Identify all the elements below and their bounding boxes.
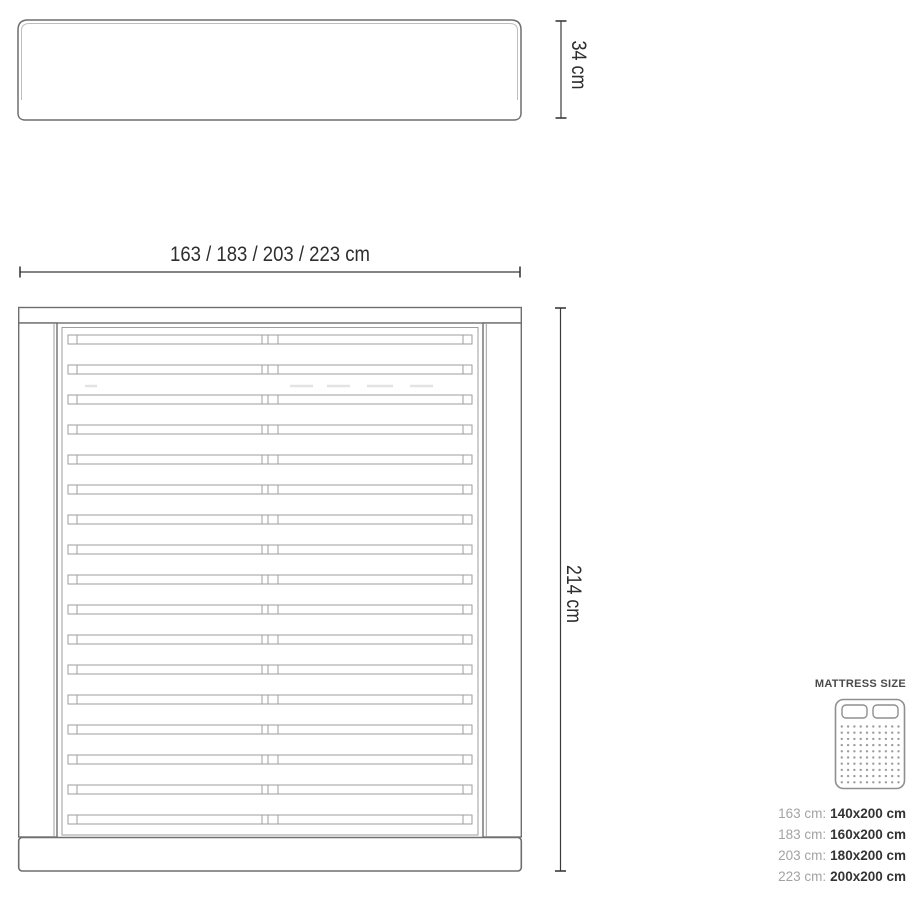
slat-row bbox=[68, 485, 472, 494]
frame-length-dimension: 214 cm bbox=[555, 308, 585, 871]
frame-length-label: 214 cm bbox=[562, 565, 585, 623]
frame-head-rail bbox=[19, 308, 522, 324]
slat-row bbox=[68, 755, 472, 764]
slat-row bbox=[68, 725, 472, 734]
mattress-size-row: 183 cm:160x200 cm bbox=[778, 824, 906, 845]
mattress-dimensions: 200x200 cm bbox=[830, 869, 906, 884]
frame-width-option: 203 cm: bbox=[778, 848, 826, 863]
frame-width-option: 183 cm: bbox=[778, 827, 826, 842]
pillow-left bbox=[842, 705, 867, 718]
frame-width-option: 163 cm: bbox=[778, 806, 826, 821]
headboard-height-label: 34 cm bbox=[567, 41, 590, 90]
frame-side-rail-right bbox=[483, 323, 521, 837]
slat-row bbox=[68, 665, 472, 674]
frame-foot-rail bbox=[19, 838, 522, 872]
frame-width-option: 223 cm: bbox=[778, 869, 826, 884]
slat-row bbox=[68, 605, 472, 614]
slat-row bbox=[68, 695, 472, 704]
mattress-dimensions: 140x200 cm bbox=[830, 806, 906, 821]
slat-row bbox=[68, 575, 472, 584]
slat-row bbox=[68, 815, 472, 824]
mattress-size-row: 203 cm:180x200 cm bbox=[778, 845, 906, 866]
bed-dimensions-page: 34 cm 163 / 183 / 203 / 223 cm bbox=[0, 0, 920, 900]
headboard-side-view bbox=[18, 20, 521, 120]
slat-row bbox=[68, 635, 472, 644]
pillow-right bbox=[873, 705, 898, 718]
slat-row bbox=[68, 545, 472, 554]
slat-row bbox=[68, 515, 472, 524]
frame-side-rail-left bbox=[19, 323, 57, 837]
mattress-size-table: 163 cm:140x200 cm 183 cm:160x200 cm 203 … bbox=[778, 803, 906, 887]
mattress-dimensions: 180x200 cm bbox=[830, 848, 906, 863]
slat-row bbox=[68, 335, 472, 344]
mattress-dimensions: 160x200 cm bbox=[830, 827, 906, 842]
headboard-outline bbox=[18, 20, 521, 120]
slat-row bbox=[68, 425, 472, 434]
headboard-height-dimension: 34 cm bbox=[556, 21, 591, 118]
mattress-size-legend: MATTRESS SIZE 163 cm:140x200 cm 183 cm:1… bbox=[778, 678, 906, 887]
frame-width-label: 163 / 183 / 203 / 223 cm bbox=[170, 243, 370, 266]
legend-title: MATTRESS SIZE bbox=[815, 678, 906, 690]
slat-row bbox=[68, 785, 472, 794]
bed-frame-top-view bbox=[19, 308, 522, 872]
mattress-size-row: 163 cm:140x200 cm bbox=[778, 803, 906, 824]
slat-row bbox=[68, 365, 472, 374]
frame-width-dimension: 163 / 183 / 203 / 223 cm bbox=[20, 243, 520, 278]
mattress-size-row: 223 cm:200x200 cm bbox=[778, 866, 906, 887]
mattress-top-view-icon bbox=[834, 698, 906, 790]
slat-row bbox=[68, 455, 472, 464]
slat-row bbox=[68, 395, 472, 404]
